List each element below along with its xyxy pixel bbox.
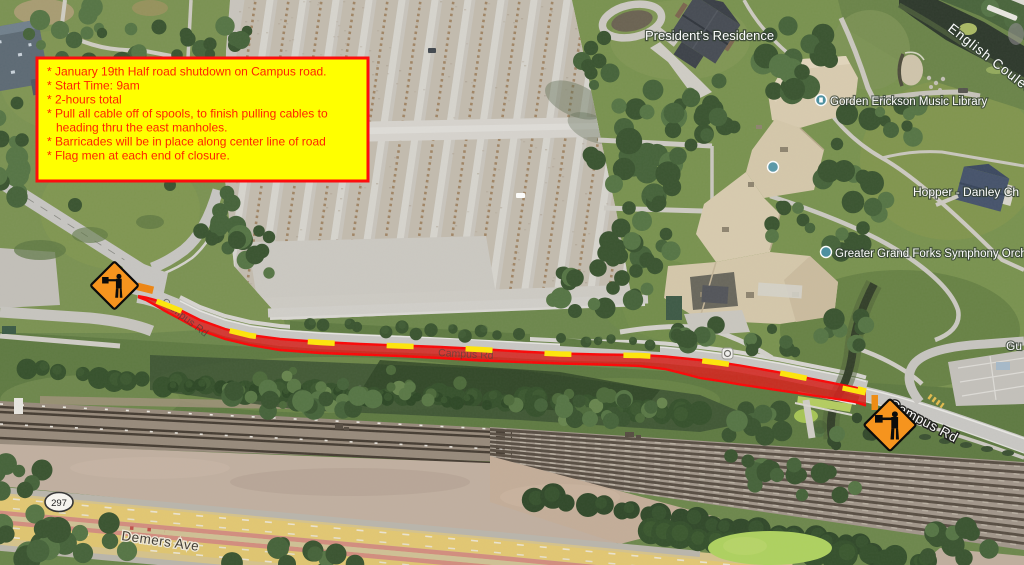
svg-text:* Flag men at each end of clos: * Flag men at each end of closure. <box>47 149 230 163</box>
svg-text:* Pull all cable off of spools: * Pull all cable off of spools, to finis… <box>47 107 328 121</box>
svg-text:* 2-hours total: * 2-hours total <box>47 93 122 107</box>
svg-text:* January 19th Half road shutd: * January 19th Half road shutdown on Cam… <box>47 65 327 79</box>
svg-text:* Barricades will be in place: * Barricades will be in place along cent… <box>47 135 326 149</box>
svg-text:* Start Time: 9am: * Start Time: 9am <box>47 79 140 93</box>
svg-text:heading thru the east manholes: heading thru the east manholes. <box>56 121 227 135</box>
